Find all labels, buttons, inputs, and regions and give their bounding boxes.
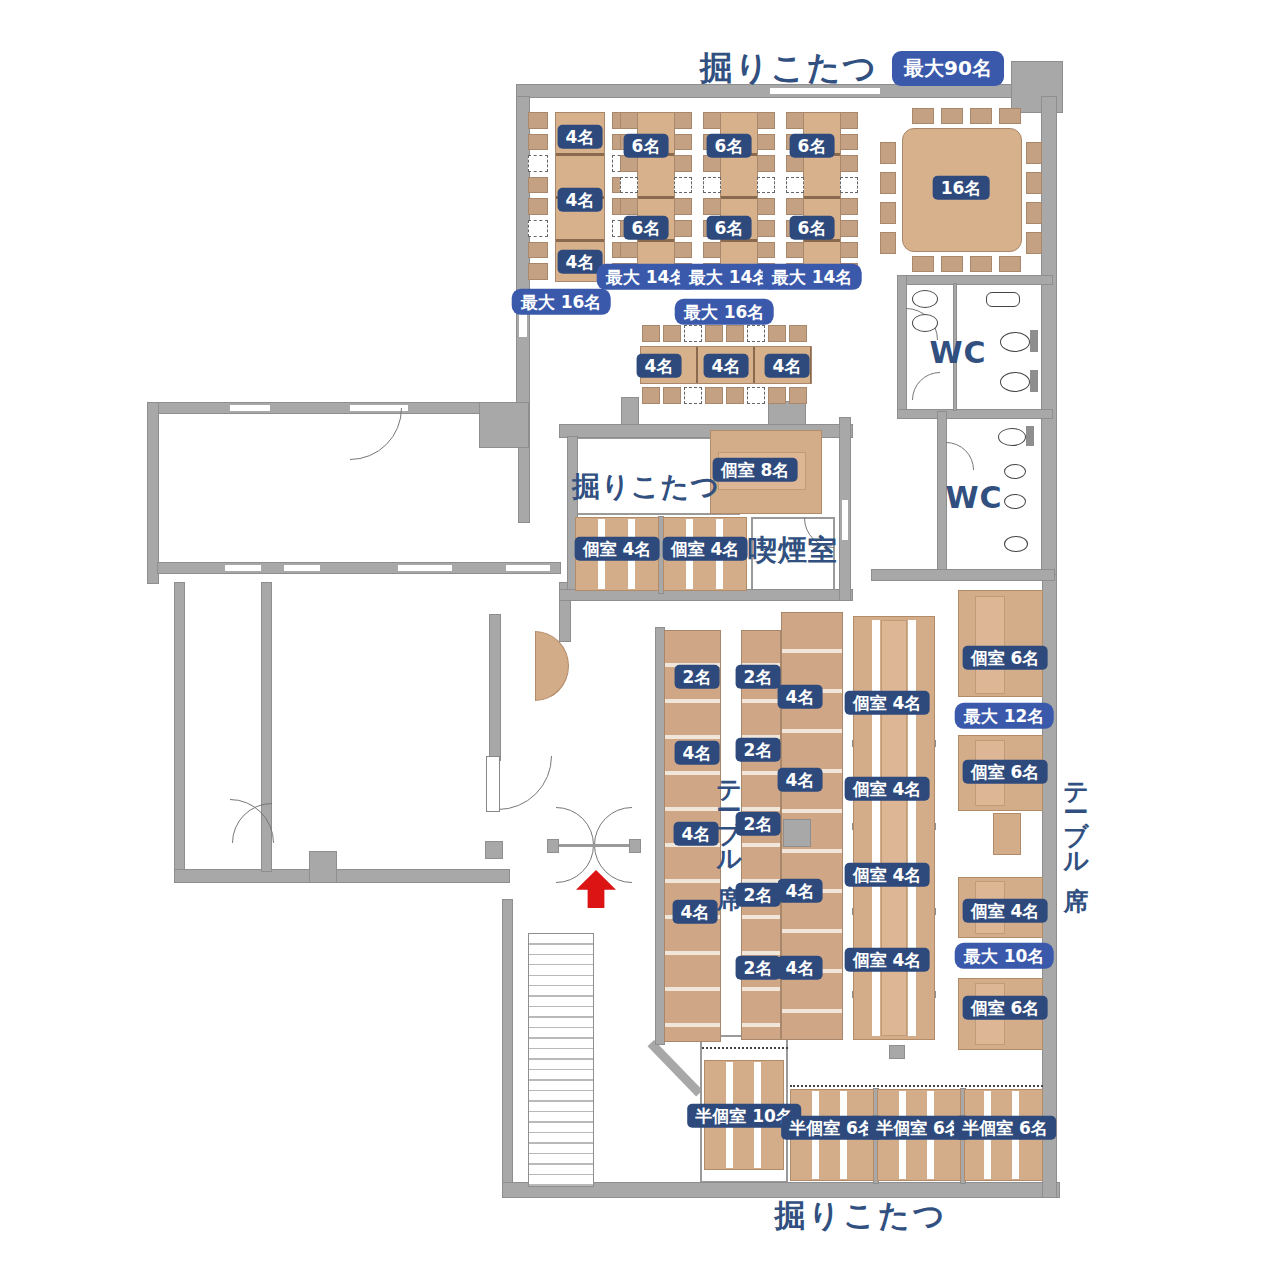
seat [528,263,548,280]
seat [674,155,692,172]
booth-divider [908,620,916,1036]
seat [970,108,992,124]
seat [703,177,721,194]
wall [898,410,1052,418]
seat-badge: 4名 [674,822,719,846]
toilet-fixture-icon [1000,372,1030,392]
wall [560,590,852,600]
seat [1026,142,1042,164]
zone-title-top: 掘りこたつ 最大90名 [700,46,1004,91]
seat [642,387,660,404]
seat [674,134,692,151]
door-gap [284,565,320,571]
seat [786,112,804,129]
booth-wood [993,813,1021,855]
wall [622,398,638,424]
seat-badge: 最大 10名 [955,943,1054,969]
seat [757,155,775,172]
seat-badge: 最大 12名 [955,703,1054,729]
seat-badge: 半個室 6名 [954,1116,1056,1140]
toilet-tank-icon [1030,370,1038,392]
wall [503,900,512,1195]
seat-badge: 4名 [558,188,603,212]
wall [480,403,528,447]
seat [757,242,775,259]
seat [1026,172,1042,194]
toilet-fixture-icon [912,290,938,308]
wall [175,870,509,882]
seat [674,220,692,237]
seat [528,242,548,259]
door-post [630,840,640,852]
curtain-line [790,1085,1043,1087]
wall [148,403,158,583]
seat [999,256,1021,272]
toilet-tank-icon [1030,330,1038,352]
seat-badge: 6名 [790,216,835,240]
seat-badge: 個室 4名 [845,948,930,972]
seat [747,325,765,342]
seat [674,112,692,129]
door-post [548,840,558,852]
seat [941,108,963,124]
seat [703,198,721,215]
seat [674,198,692,215]
seat [840,220,858,237]
seat [705,325,723,342]
seat [757,177,775,194]
table-surface [881,620,907,1036]
seat-badge: 個室 6名 [963,760,1048,784]
seat [528,134,548,151]
seat [786,177,804,194]
seat [684,325,702,342]
seat [840,242,858,259]
seat [840,134,858,151]
seat-badge: 16名 [933,176,990,200]
seat [999,108,1021,124]
toilet-fixture-icon [1004,536,1028,552]
area-label: WC [945,480,1002,515]
seat [768,387,786,404]
wall [310,852,336,882]
seat-badge: 最大 16名 [675,299,774,325]
door-leaf [486,756,500,812]
door-gap [506,565,550,571]
seat [880,142,896,164]
seat-badge: 個室 8名 [713,458,798,482]
area-label: 喫煙室 [748,531,838,571]
seat [840,177,858,194]
seat [663,387,681,404]
seat-badge: 4名 [778,956,823,980]
seat [970,256,992,272]
zone-capacity-badge-top: 最大90名 [892,51,1004,86]
door-line [556,844,632,847]
seat-badge: 6名 [707,216,752,240]
seat-badge: 4名 [558,250,603,274]
wall [769,402,805,424]
seat-badge: 2名 [675,665,720,689]
wall [490,615,500,760]
seat [757,198,775,215]
seat [726,387,744,404]
toilet-fixture-icon [1000,332,1030,352]
zone-title-top-text: 掘りこたつ [700,46,878,91]
seat [912,256,934,272]
seat [528,112,548,129]
seat-badge: 個室 4名 [845,863,930,887]
seat [786,198,804,215]
wall [898,276,1052,284]
seat [840,112,858,129]
seat [880,202,896,224]
seat [880,232,896,254]
booth-divider [872,620,880,1036]
wall [656,628,664,1044]
toilet-fixture-icon [1004,494,1026,509]
seat-badge: 4名 [778,879,823,903]
seat-badge: 4名 [765,354,810,378]
seat [528,155,548,172]
seat [941,256,963,272]
seat [726,325,744,342]
seat [703,112,721,129]
seat-badge: 個室 4名 [845,777,930,801]
sliding-door-icon [535,631,569,701]
wall [175,583,184,878]
wall [158,563,560,573]
seat-badge: 2名 [736,738,781,762]
door-gap [842,500,848,540]
wall [898,276,906,418]
seat [684,387,702,404]
restaurant-floor-plan: 掘りこたつ 最大90名 掘りこたつ 4名4名4名最大 16名6名6名最大 14名… [0,0,1280,1280]
seat [880,172,896,194]
seat-badge: 個室 4名 [845,691,930,715]
seat [528,198,548,215]
seat [789,325,807,342]
seat-badge: 個室 6名 [963,996,1048,1020]
area-label: 掘りこたつ [572,468,720,506]
seat [674,242,692,259]
seat [757,220,775,237]
area-label: テーブル席 [1060,765,1093,870]
toilet-fixture-icon [912,314,938,332]
seat [663,325,681,342]
seat [757,112,775,129]
seat [528,220,548,237]
seat-badge: 4名 [778,685,823,709]
wall [148,403,518,413]
seat-badge: 4名 [778,768,823,792]
wall [872,570,1054,580]
toilet-tank-icon [1026,426,1034,446]
seat [703,242,721,259]
seat [620,198,638,215]
seat-badge: 個室 4名 [963,899,1048,923]
seat [620,112,638,129]
seat [1026,202,1042,224]
seat-badge: 4名 [558,125,603,149]
curtain-line [702,1047,788,1049]
toilet-fixture-icon [986,292,1020,307]
seat [786,242,804,259]
seat-badge: 4名 [704,354,749,378]
zone-title-bottom: 掘りこたつ [775,1195,948,1237]
door-gap [225,565,261,571]
seat [620,177,638,194]
seat-badge: 2名 [736,665,781,689]
seat-badge: 6名 [790,134,835,158]
wall [648,1040,703,1097]
seat [528,177,548,194]
door-gap [230,405,270,411]
seat [789,387,807,404]
seat-badge: 最大 14名 [763,264,862,290]
seat [757,134,775,151]
seat-badge: 個室 6名 [963,646,1048,670]
seat-badge: 4名 [673,900,718,924]
area-label: WC [929,335,986,370]
wall [1042,97,1056,577]
seat-badge: 4名 [675,741,720,765]
seat-badge: 6名 [624,134,669,158]
seat-badge: 個室 4名 [575,537,660,561]
seat [840,155,858,172]
seat-badge: 個室 4名 [663,537,748,561]
seat [747,387,765,404]
seat [1026,232,1042,254]
seat-badge: 6名 [624,216,669,240]
door-gap [398,565,452,571]
seat-badge: 最大 16名 [512,289,611,315]
seat [912,108,934,124]
seat [642,325,660,342]
pillar [784,820,810,846]
seat [705,387,723,404]
seat-badge: 2名 [736,883,781,907]
wall [519,442,529,522]
seat-badge: 2名 [736,956,781,980]
wall [890,1046,904,1058]
stairs [528,933,594,1187]
seat [768,325,786,342]
seat-badge: 6名 [707,134,752,158]
toilet-fixture-icon [1004,464,1026,479]
wall [486,842,502,858]
seat [674,177,692,194]
seat [620,242,638,259]
seat [840,198,858,215]
seat-badge: 4名 [637,354,682,378]
seat-badge: 2名 [736,812,781,836]
toilet-fixture-icon [998,428,1026,446]
